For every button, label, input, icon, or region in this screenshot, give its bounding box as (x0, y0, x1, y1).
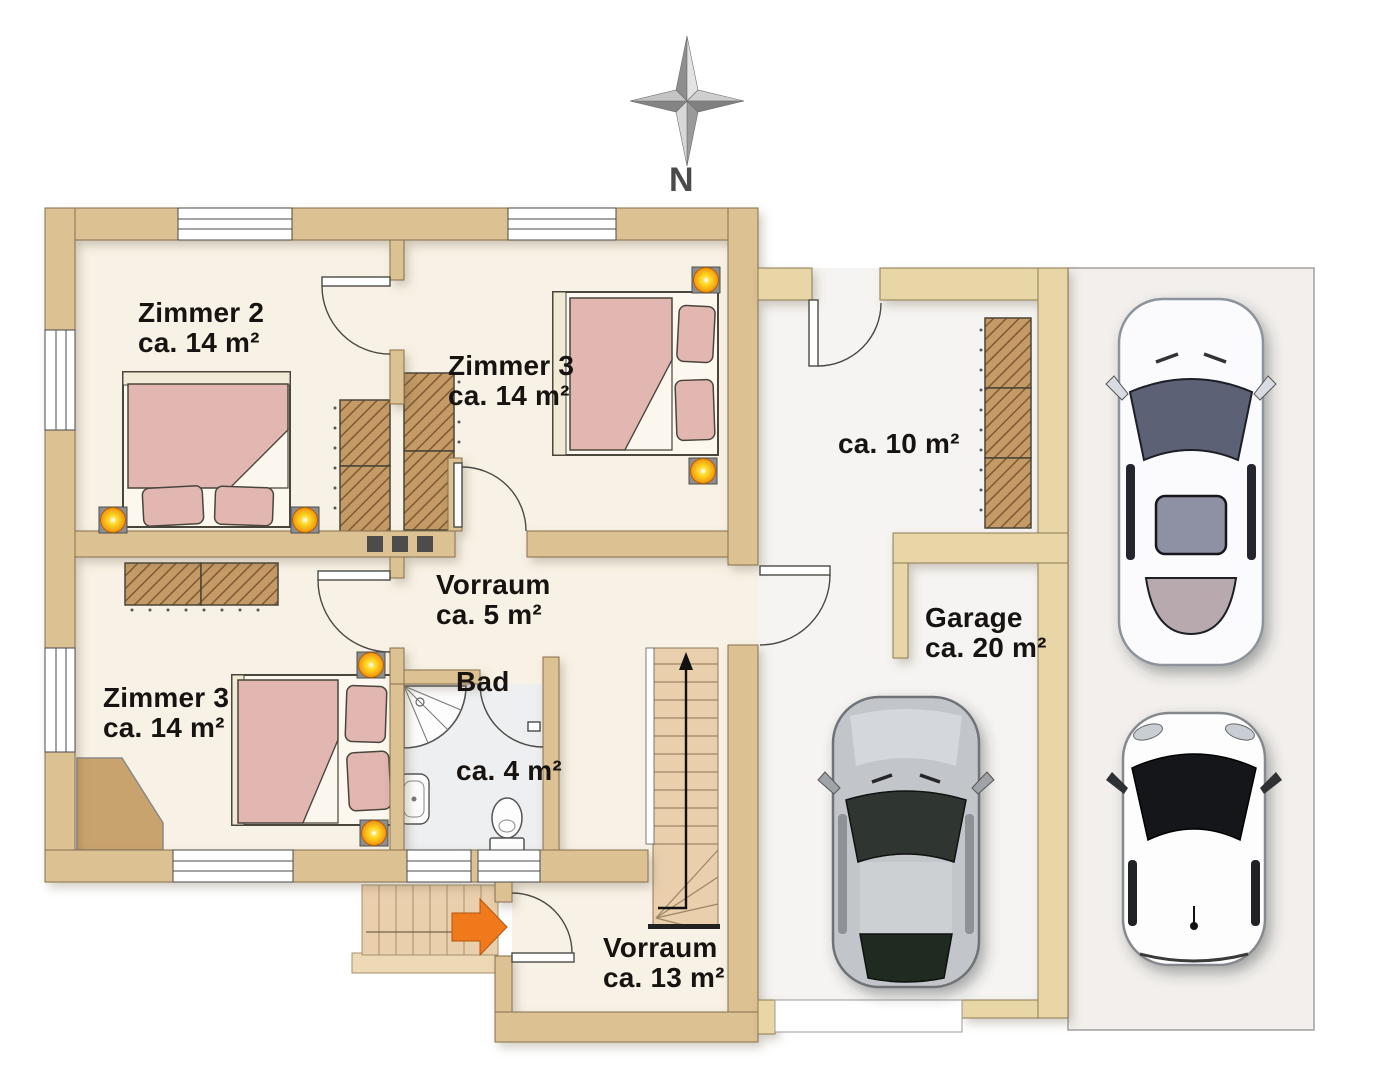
floor-plan: N Zimmer 2 ca. 14 m² Zimmer 3 ca. 14 m² … (0, 0, 1389, 1080)
bed-zimmer3-top (553, 292, 718, 455)
car-garage (818, 697, 994, 987)
lamp (689, 458, 717, 484)
bed-zimmer3-bottom (232, 675, 392, 825)
car-windshield (846, 791, 966, 862)
room-label-zimmer3-bottom-name: Zimmer 3 (103, 684, 229, 712)
room-label-storage-area: ca. 10 m² (838, 430, 960, 458)
pillow (214, 486, 273, 526)
pillow (675, 379, 715, 440)
room-label-garage-name: Garage (925, 604, 1023, 632)
car-antenna (1190, 922, 1198, 930)
room-label-zimmer2-area: ca. 14 m² (138, 329, 260, 357)
room-label-vorraum-upper-name: Vorraum (436, 571, 550, 599)
car-sedan (1106, 299, 1276, 665)
garage-door-opening-floor (728, 565, 758, 645)
wall-vent-squares (367, 536, 433, 552)
lamp (291, 507, 319, 533)
room-label-bad-name: Bad (456, 668, 510, 696)
lamp (692, 267, 720, 293)
wardrobe (985, 388, 1031, 458)
room-label-zimmer3-bottom-area: ca. 14 m² (103, 714, 225, 742)
room-label-bad-area: ca. 4 m² (456, 757, 562, 785)
room-label-garage-area: ca. 20 m² (925, 634, 1047, 662)
room-label-zimmer3-top-name: Zimmer 3 (448, 352, 574, 380)
wardrobe (985, 318, 1031, 388)
storage-door-opening (812, 268, 880, 300)
wardrobe (985, 458, 1031, 528)
window (45, 330, 75, 430)
car-windshield (1130, 379, 1252, 460)
wardrobe (125, 563, 201, 605)
lamp (357, 652, 385, 678)
lamp (99, 507, 127, 533)
stair-handrail (646, 648, 654, 844)
car-windshield (1132, 754, 1256, 840)
car-hatchback (1106, 713, 1282, 965)
bed-zimmer2 (123, 372, 290, 527)
car-rear-window (860, 934, 952, 982)
lamp (360, 820, 388, 846)
window (178, 208, 292, 240)
pillow (677, 305, 716, 363)
window (508, 208, 616, 240)
compass-rose-icon (630, 36, 744, 166)
staircase (646, 648, 720, 929)
room-label-vorraum-lower-area: ca. 13 m² (603, 964, 725, 992)
window (407, 850, 471, 882)
pillow (142, 485, 204, 526)
pillow (347, 751, 392, 811)
room-label-zimmer3-top-area: ca. 14 m² (448, 382, 570, 410)
wardrobe (404, 451, 454, 530)
wardrobe (340, 400, 390, 466)
window (45, 648, 75, 752)
room-label-zimmer2-name: Zimmer 2 (138, 299, 264, 327)
window (173, 850, 293, 882)
garage-door (775, 1000, 962, 1032)
window (478, 850, 540, 882)
car-sunroof (1156, 496, 1226, 554)
wardrobe (340, 466, 390, 533)
room-label-vorraum-lower-name: Vorraum (603, 934, 717, 962)
wardrobe (404, 373, 454, 451)
toilet (490, 798, 524, 851)
north-label: N (669, 163, 695, 197)
pillow (345, 685, 387, 742)
wardrobe (201, 563, 278, 605)
stair-bottom-edge (648, 924, 720, 929)
room-label-vorraum-upper-area: ca. 5 m² (436, 601, 542, 629)
